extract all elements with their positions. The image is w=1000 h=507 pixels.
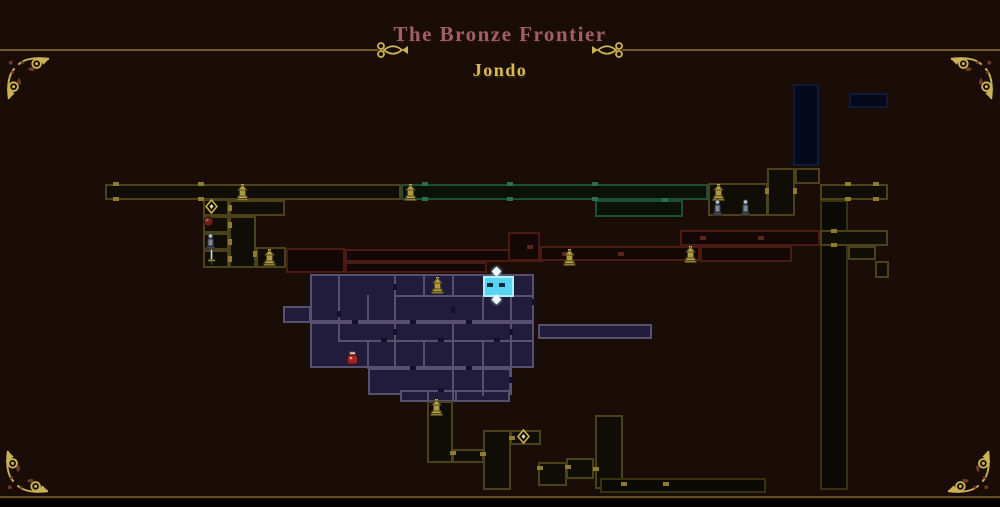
map-door-marker [494,338,500,342]
shrine-icon [404,184,417,201]
map-door-marker [253,251,257,257]
map-room [793,84,819,166]
sword-icon [207,249,216,266]
map-door-marker [507,197,513,201]
map-door-marker [466,366,472,370]
map-door-marker [352,320,358,324]
map-room [229,216,256,268]
map-door-marker [873,197,879,201]
map-door-marker [393,329,397,335]
diamond-icon [205,199,218,214]
map-door-marker [410,366,416,370]
map-door-marker [499,283,505,287]
map-door-marker [507,182,513,186]
map-room-wall [367,340,369,369]
map-door-marker [663,482,669,486]
map-door-marker [450,451,456,455]
map-door-marker [381,338,387,342]
map-door-marker [537,466,543,470]
map-door-marker [845,197,851,201]
map-door-marker [831,229,837,233]
map-door-marker [451,307,455,313]
map-door-marker [228,205,232,211]
map-room [700,246,792,262]
map-door-marker [198,197,204,201]
map-door-marker [113,182,119,186]
map-door-marker [480,452,486,456]
map-screen: The Bronze Frontier Jondo [0,0,1000,507]
map-door-marker [618,252,624,256]
map-room-wall [338,275,340,340]
map-door-marker [592,197,598,201]
map-door-marker [509,329,513,335]
map-door-marker [758,236,764,240]
shrine-icon [236,184,249,201]
map-room-wall [452,275,454,296]
map-door-marker [831,243,837,247]
shrine-icon [430,399,443,416]
map-door-marker [592,182,598,186]
map-door-marker [765,188,769,194]
map-room [795,168,820,184]
map-room [767,168,795,216]
map-room [848,246,876,260]
map-door-marker [700,236,706,240]
map-door-marker [532,299,536,305]
statue-icon [740,199,751,216]
map-door-marker [113,197,119,201]
map-door-marker [438,388,444,392]
shrine-icon [431,277,444,294]
frame-bottom-line [0,496,1000,498]
diamond-icon [517,429,530,444]
map-door-marker [793,188,797,194]
map-door-marker [662,198,668,202]
shrine-icon [563,249,576,266]
map-door-marker [565,465,571,469]
map-room-wall [400,390,510,392]
map-door-marker [438,338,444,342]
map-door-marker [198,182,204,186]
map-room [283,306,311,323]
map-door-marker [487,283,493,287]
map-room [595,200,683,217]
jar-icon [346,351,359,366]
map-door-marker [228,239,232,245]
map-room-wall [423,340,425,369]
region-title: The Bronze Frontier [0,22,1000,47]
header-divider-line [622,49,1000,51]
map-door-marker [228,222,232,228]
map-door-marker [509,377,513,383]
map-room [345,262,487,273]
orb-icon [203,216,214,227]
map-room [508,232,540,261]
map-door-marker [337,311,341,317]
map-room [286,248,345,273]
map-room-wall [423,275,425,296]
map-room-wall [367,295,369,323]
map-door-marker [228,256,232,262]
map-door-marker [593,467,599,471]
map-door-marker [527,245,533,249]
map-door-marker [422,197,428,201]
map-room [875,261,889,278]
map-room [105,184,401,200]
map-door-marker [873,182,879,186]
map-room-wall [368,368,510,370]
map-door-marker [466,320,472,324]
map-room [310,322,534,368]
map-room [310,274,396,322]
map-room [538,324,652,339]
header-divider-line [0,49,378,51]
map-room-wall [310,322,534,324]
map-door-marker [422,182,428,186]
statue-icon [205,233,216,250]
map-door-marker [845,182,851,186]
map-room [483,430,511,490]
frame-bottom-strip [0,499,1000,507]
map-door-marker [509,436,515,440]
map-room-wall [452,322,454,400]
map-room-wall [482,296,484,323]
map-room-wall [338,340,534,342]
statue-icon [712,199,723,216]
map-door-marker [410,320,416,324]
map-room [229,200,285,216]
shrine-icon [263,249,276,266]
map-room [849,93,888,108]
map-door-marker [621,482,627,486]
map-viewport[interactable] [0,55,1000,496]
map-room-wall [482,340,484,369]
shrine-icon [684,246,697,263]
map-door-marker [393,284,397,290]
